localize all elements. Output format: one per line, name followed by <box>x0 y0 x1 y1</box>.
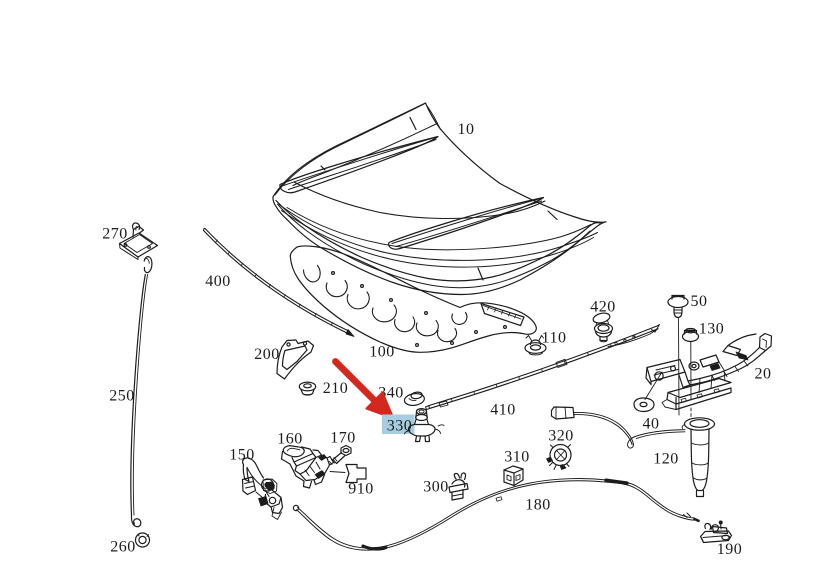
svg-text:10: 10 <box>458 121 475 138</box>
svg-text:910: 910 <box>348 481 374 498</box>
svg-text:150: 150 <box>229 447 255 464</box>
svg-text:210: 210 <box>323 380 349 397</box>
svg-text:120: 120 <box>653 451 679 468</box>
svg-text:20: 20 <box>755 366 772 383</box>
svg-text:410: 410 <box>490 402 516 419</box>
svg-text:250: 250 <box>109 388 135 405</box>
svg-text:170: 170 <box>330 430 356 447</box>
svg-text:310: 310 <box>504 449 530 466</box>
svg-text:270: 270 <box>102 226 128 243</box>
svg-text:100: 100 <box>369 344 395 361</box>
svg-text:300: 300 <box>423 479 449 496</box>
svg-text:190: 190 <box>717 541 743 558</box>
svg-text:50: 50 <box>691 293 708 310</box>
svg-text:320: 320 <box>548 428 574 445</box>
svg-text:330: 330 <box>387 418 413 435</box>
svg-text:160: 160 <box>277 431 303 448</box>
svg-text:420: 420 <box>590 299 616 316</box>
svg-text:400: 400 <box>205 273 231 290</box>
svg-text:260: 260 <box>110 539 136 556</box>
svg-text:110: 110 <box>542 330 567 347</box>
svg-text:200: 200 <box>254 346 280 363</box>
svg-text:130: 130 <box>699 321 725 338</box>
svg-text:40: 40 <box>643 416 660 433</box>
svg-text:180: 180 <box>525 497 551 514</box>
